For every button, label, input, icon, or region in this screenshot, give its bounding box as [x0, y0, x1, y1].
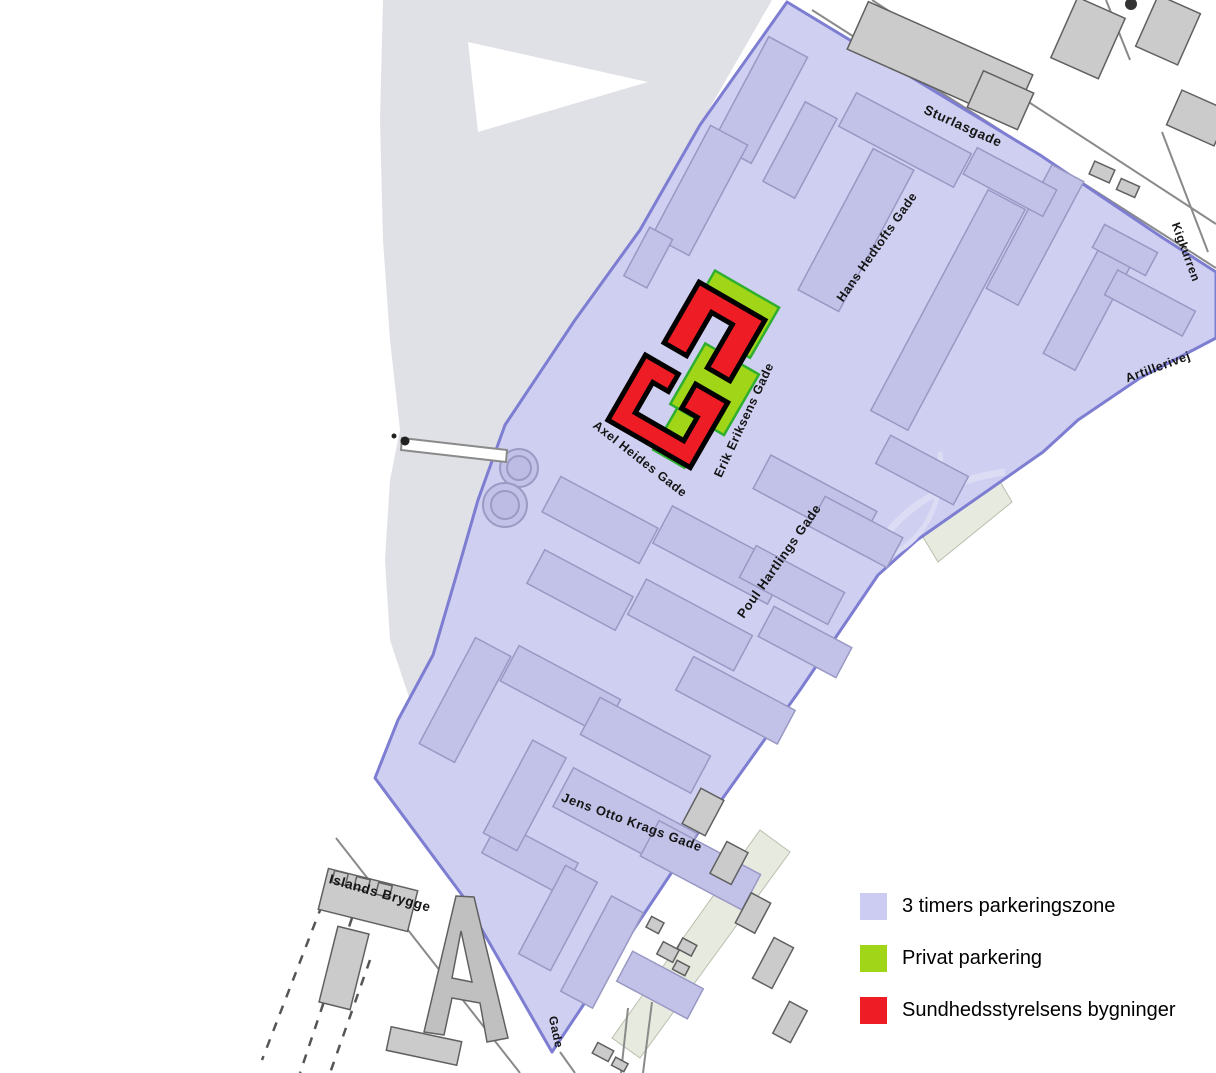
legend-item-private-parking: Privat parkering	[860, 945, 1176, 972]
legend-item-sundhedsstyrelsen: Sundhedsstyrelsens bygninger	[860, 997, 1176, 1024]
legend-swatch-private-parking	[860, 945, 887, 972]
legend-swatch-sundhedsstyrelsen	[860, 997, 887, 1024]
parking-zone-map: Sturlasgade Kigkurren Artillerivej Hans …	[0, 0, 1216, 1073]
boat-icon	[401, 437, 410, 446]
legend: 3 timers parkeringszone Privat parkering…	[860, 893, 1176, 1024]
legend-item-parking-zone: 3 timers parkeringszone	[860, 893, 1176, 920]
legend-label-parking-zone: 3 timers parkeringszone	[902, 895, 1115, 918]
legend-label-private-parking: Privat parkering	[902, 947, 1042, 970]
legend-swatch-parking-zone	[860, 893, 887, 920]
legend-label-sundhedsstyrelsen: Sundhedsstyrelsens bygninger	[902, 999, 1176, 1022]
map-dot	[1125, 0, 1137, 10]
